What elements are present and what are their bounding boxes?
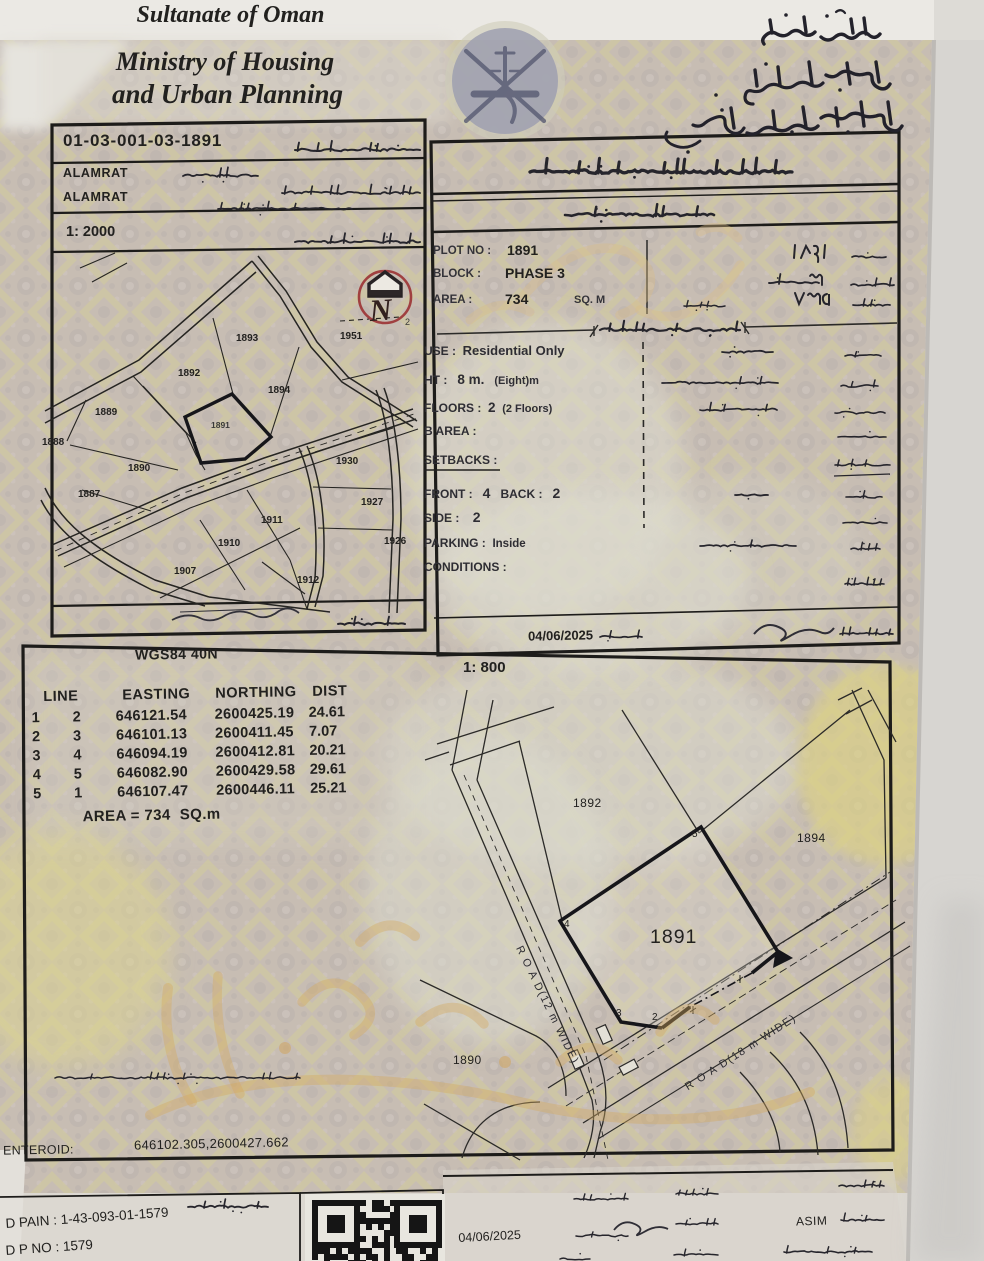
svg-text:2: 2 [405,317,410,327]
svg-text:N: N [367,291,394,328]
